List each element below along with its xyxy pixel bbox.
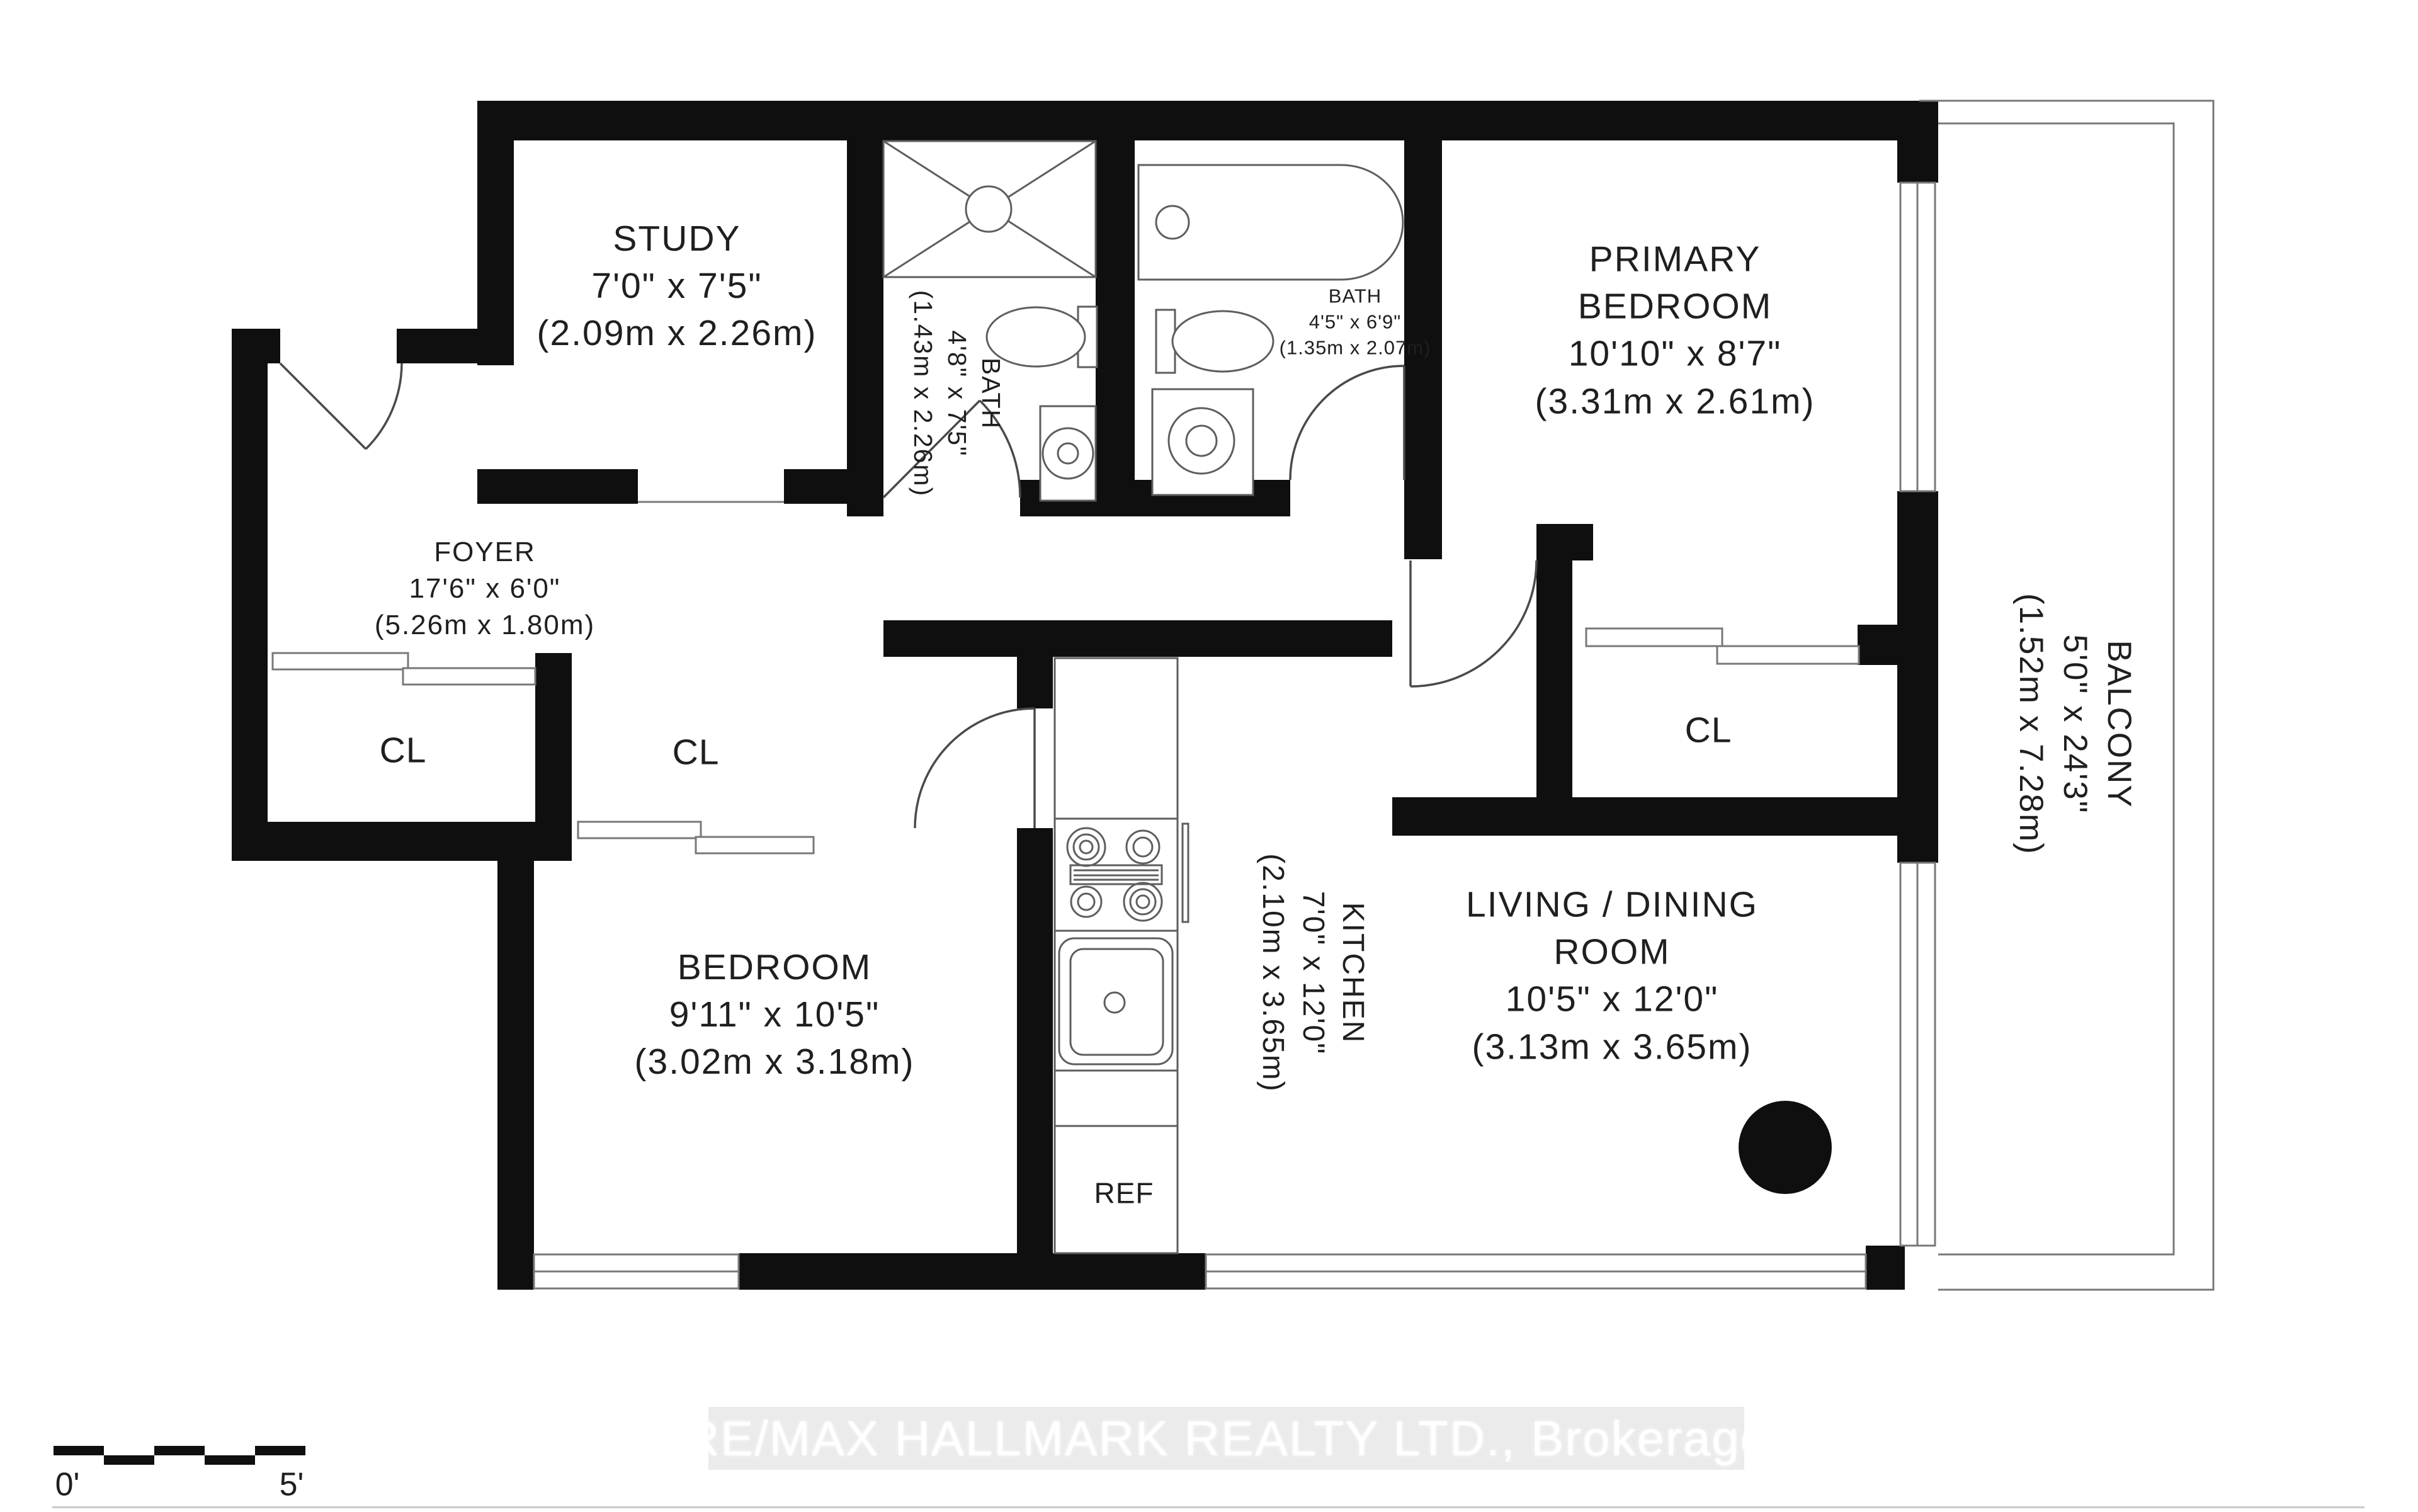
slider-primary-closet-b <box>1717 646 1859 664</box>
label-living-dining: LIVING / DINING ROOM 10'5" x 12'0" (3.13… <box>1466 882 1758 1071</box>
kitchen-dims-m: (2.10m x 3.65m) <box>1253 853 1293 1092</box>
wall-right-top <box>1897 101 1938 183</box>
living-name-2: ROOM <box>1466 929 1758 976</box>
window-balcony-upper <box>1900 183 1935 491</box>
window-living <box>1206 1254 1866 1288</box>
primary-name-1: PRIMARY <box>1535 236 1815 283</box>
footer-divider <box>52 1506 2364 1508</box>
window-balcony-lower <box>1900 863 1935 1246</box>
label-closet-foyer: CL <box>380 727 427 774</box>
wall-closet-band-bottom <box>232 822 572 861</box>
primary-dims-ft: 10'10" x 8'7" <box>1535 331 1815 378</box>
label-fridge: REF <box>1094 1174 1154 1213</box>
label-primary-bedroom: PRIMARY BEDROOM 10'10" x 8'7" (3.31m x 2… <box>1535 236 1815 426</box>
scale-bar <box>54 1446 305 1465</box>
wall-entry-right-stub <box>397 329 477 363</box>
bedroom-dims-ft: 9'11" x 10'5" <box>635 991 915 1038</box>
column <box>1739 1101 1832 1194</box>
wall-closet3-right-stub <box>1858 625 1897 665</box>
label-bath2: BATH 4'5" x 6'9" (1.35m x 2.07m) <box>1280 284 1431 361</box>
label-foyer: FOYER 17'6" x 6'0" (5.26m x 1.80m) <box>375 534 595 644</box>
label-closet-primary: CL <box>1685 707 1732 754</box>
bedroom-name: BEDROOM <box>635 944 915 991</box>
wall-hall-bottom <box>1392 797 1907 836</box>
scale-start-label: 0' <box>55 1464 80 1507</box>
door-bedroom <box>915 708 1035 828</box>
wall-left-outer <box>232 329 268 861</box>
label-bath1: BATH 4'8" x 7'5" (1.43m x 2.26m) <box>906 290 1008 497</box>
scale-end-label: 5' <box>280 1464 304 1507</box>
stove-handle <box>1183 824 1188 922</box>
sink1-icon <box>1040 406 1096 501</box>
label-bedroom: BEDROOM 9'11" x 10'5" (3.02m x 3.18m) <box>635 944 915 1086</box>
shower-icon <box>883 141 1096 277</box>
foyer-dims-ft: 17'6" x 6'0" <box>375 571 595 607</box>
bedroom-dims-m: (3.02m x 3.18m) <box>635 1039 915 1086</box>
bath2-dims-m: (1.35m x 2.07m) <box>1280 335 1431 361</box>
wall-post-living-corner <box>1866 1246 1905 1290</box>
floor-plan-page: STUDY 7'0" x 7'5" (2.09m x 2.26m) FOYER … <box>0 0 2418 1512</box>
slider-foyer-closet-a <box>273 653 408 669</box>
label-closet-bedroom: CL <box>673 729 720 776</box>
label-study: STUDY 7'0" x 7'5" (2.09m x 2.26m) <box>537 215 817 358</box>
balcony-dims-ft: 5'0" x 24'3" <box>2053 593 2097 855</box>
slider-primary-closet-a <box>1586 628 1722 646</box>
kitchen-name: KITCHEN <box>1333 853 1373 1092</box>
wall-study-left <box>477 101 514 365</box>
bath2-name: BATH <box>1280 284 1431 310</box>
slider-bedroom-closet-a <box>578 822 701 838</box>
kitchen-fixtures <box>1055 658 1188 1253</box>
wall-right-middle <box>1897 491 1938 863</box>
living-name-1: LIVING / DINING <box>1466 882 1758 929</box>
kitchen-dims-ft: 7'0" x 12'0" <box>1293 853 1332 1092</box>
wall-study-bottom-a <box>477 469 638 504</box>
balcony-name: BALCONY <box>2097 593 2141 855</box>
slider-foyer-closet-b <box>403 668 535 685</box>
living-dims-m: (3.13m x 3.65m) <box>1466 1023 1758 1071</box>
bath2-dims-ft: 4'5" x 6'9" <box>1280 310 1431 336</box>
bath1-name: BATH <box>974 290 1008 497</box>
wall-primary-bottom-stub <box>1536 524 1593 560</box>
window-bedroom <box>534 1254 739 1288</box>
wall-top <box>477 101 1938 140</box>
study-name: STUDY <box>537 215 817 263</box>
kitchen-sink-icon <box>1059 938 1172 1064</box>
sink2-icon <box>1152 389 1253 495</box>
primary-name-2: BEDROOM <box>1535 283 1815 331</box>
bathtub-icon <box>1138 165 1403 280</box>
living-dims-ft: 10'5" x 12'0" <box>1466 976 1758 1023</box>
wall-kitchen-top <box>883 620 1392 657</box>
wall-closet-divider <box>535 653 572 861</box>
wall-closet3-left <box>1536 560 1572 836</box>
wall-bedroom-door-stub <box>1017 657 1053 708</box>
primary-dims-m: (3.31m x 2.61m) <box>1535 378 1815 425</box>
label-balcony: BALCONY 5'0" x 24'3" (1.52m x 7.28m) <box>2009 593 2141 855</box>
bath1-dims-ft: 4'8" x 7'5" <box>940 290 974 497</box>
foyer-dims-m: (5.26m x 1.80m) <box>375 607 595 644</box>
wall-bedroom-right <box>1017 828 1053 1290</box>
toilet2-icon <box>1156 310 1273 373</box>
foyer-name: FOYER <box>375 534 595 571</box>
door-primary-bedroom <box>1410 560 1536 686</box>
slider-bedroom-closet-b <box>696 837 814 853</box>
label-kitchen: KITCHEN 7'0" x 12'0" (2.10m x 3.65m) <box>1253 853 1373 1092</box>
balcony-dims-m: (1.52m x 7.28m) <box>2009 593 2053 855</box>
door-bath2 <box>1290 366 1404 480</box>
bath1-dims-m: (1.43m x 2.26m) <box>906 290 940 497</box>
study-dims-ft: 7'0" x 7'5" <box>537 263 817 310</box>
wall-bedroom-left <box>497 861 534 1290</box>
wall-bath-divider <box>1096 140 1135 480</box>
brokerage-watermark: RE/MAX HALLMARK REALTY LTD., Brokerage <box>708 1407 1744 1470</box>
wall-bottom-middle <box>739 1253 1206 1290</box>
wall-bath1-left <box>847 140 883 516</box>
study-dims-m: (2.09m x 2.26m) <box>537 310 817 358</box>
door-entry <box>280 363 402 449</box>
